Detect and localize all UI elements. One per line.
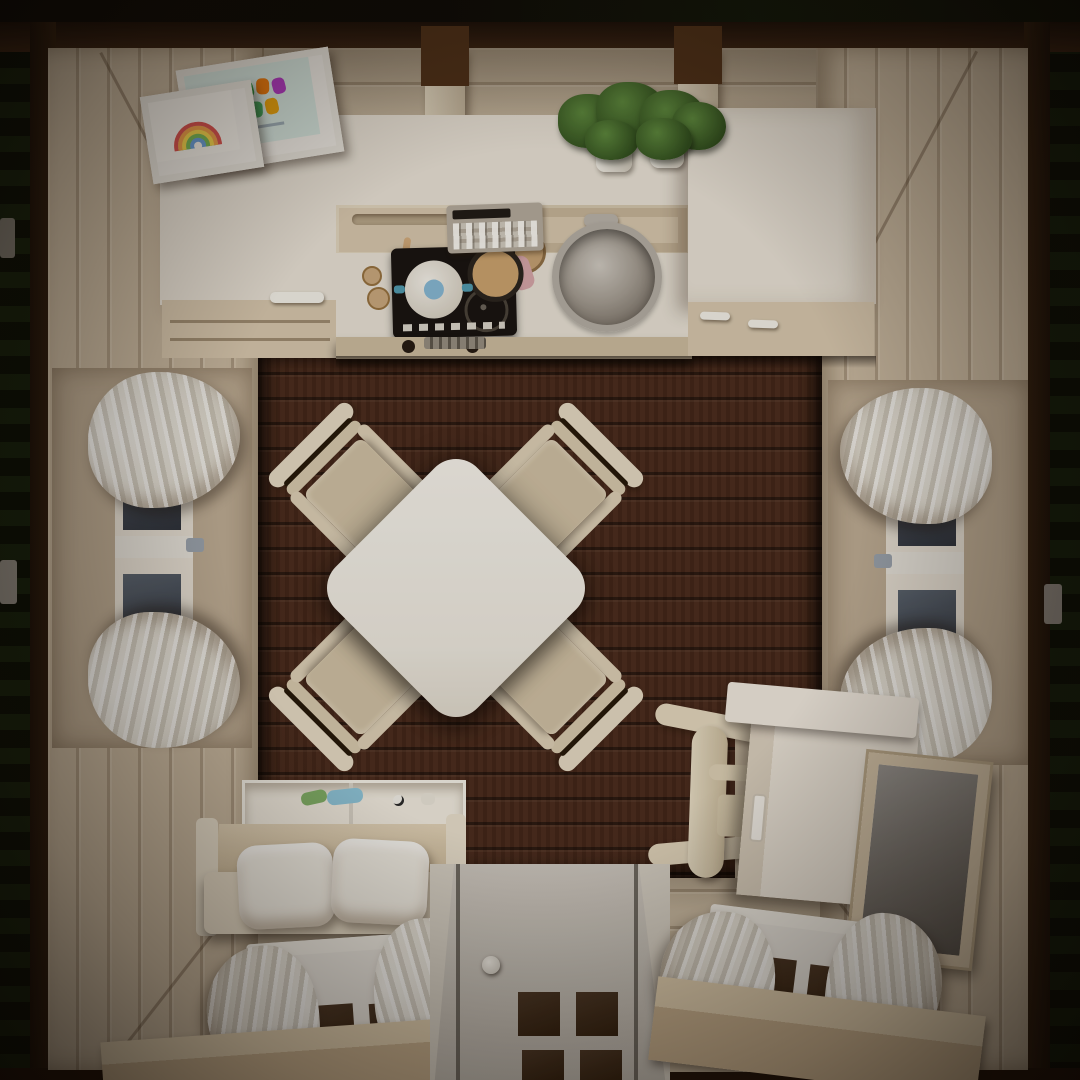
picture-frame-rainbow xyxy=(140,80,264,184)
sink[interactable] xyxy=(552,222,662,332)
curtain[interactable] xyxy=(88,612,240,748)
toy-panda[interactable] xyxy=(393,795,404,806)
ceiling-beam-cap xyxy=(421,26,469,86)
hinge xyxy=(0,218,15,258)
door-edge-line xyxy=(634,864,638,1080)
oven-vent xyxy=(424,337,486,349)
door[interactable] xyxy=(430,864,670,1080)
plant-foliage xyxy=(636,118,692,160)
foliage-left xyxy=(0,0,34,1080)
letter-blob xyxy=(256,78,270,94)
toy-blue[interactable] xyxy=(326,787,363,806)
kitchen-drawer-left xyxy=(162,300,336,358)
drawer-groove xyxy=(170,320,330,323)
door-edge-line xyxy=(456,864,460,1080)
fridge-drawers xyxy=(688,302,874,356)
rainbow-icon xyxy=(171,118,223,151)
letter-blob xyxy=(264,97,280,116)
window-latch-handle[interactable] xyxy=(186,538,204,552)
drawer-groove xyxy=(170,338,330,341)
door-knob[interactable] xyxy=(482,956,500,974)
panel-display xyxy=(452,208,510,219)
pan xyxy=(467,245,524,302)
letter-blob xyxy=(270,76,287,95)
door-pane xyxy=(576,992,618,1036)
door-assembly xyxy=(430,864,670,1080)
spice-jar xyxy=(367,287,390,310)
drawer-handle[interactable] xyxy=(700,311,730,320)
hinge xyxy=(0,560,17,604)
drawer-handle[interactable] xyxy=(748,319,778,328)
door-pane xyxy=(580,1050,622,1080)
desk-drawer-handle[interactable] xyxy=(749,793,767,842)
drawer-handle[interactable] xyxy=(270,292,324,303)
curtain[interactable] xyxy=(840,388,992,524)
room-render xyxy=(0,0,1080,1080)
counter-control-panel[interactable] xyxy=(446,202,544,253)
cooktop[interactable] xyxy=(391,245,517,338)
door-pane xyxy=(518,992,560,1036)
counter-floor-shadow xyxy=(336,356,876,368)
pot-handle xyxy=(394,285,405,293)
window-latch[interactable] xyxy=(886,552,964,574)
spice-jar xyxy=(362,266,382,286)
foliage-right xyxy=(1046,0,1080,1080)
pot-handle xyxy=(462,284,473,292)
curtain[interactable] xyxy=(88,372,240,508)
toy-green[interactable] xyxy=(300,788,328,806)
window-latch-handle[interactable] xyxy=(874,554,892,568)
ceiling-beam-cap xyxy=(674,26,722,84)
toy-small[interactable] xyxy=(421,793,435,805)
window-left xyxy=(52,368,252,748)
panel-buttons[interactable] xyxy=(453,221,538,250)
rainbow-clip xyxy=(170,118,223,152)
door-pane xyxy=(522,1050,564,1080)
window-latch[interactable] xyxy=(115,536,193,558)
frame-art-rainbow xyxy=(148,90,240,162)
plant-foliage xyxy=(585,120,639,160)
oven-knob[interactable] xyxy=(402,340,415,353)
hinge xyxy=(1044,584,1062,624)
